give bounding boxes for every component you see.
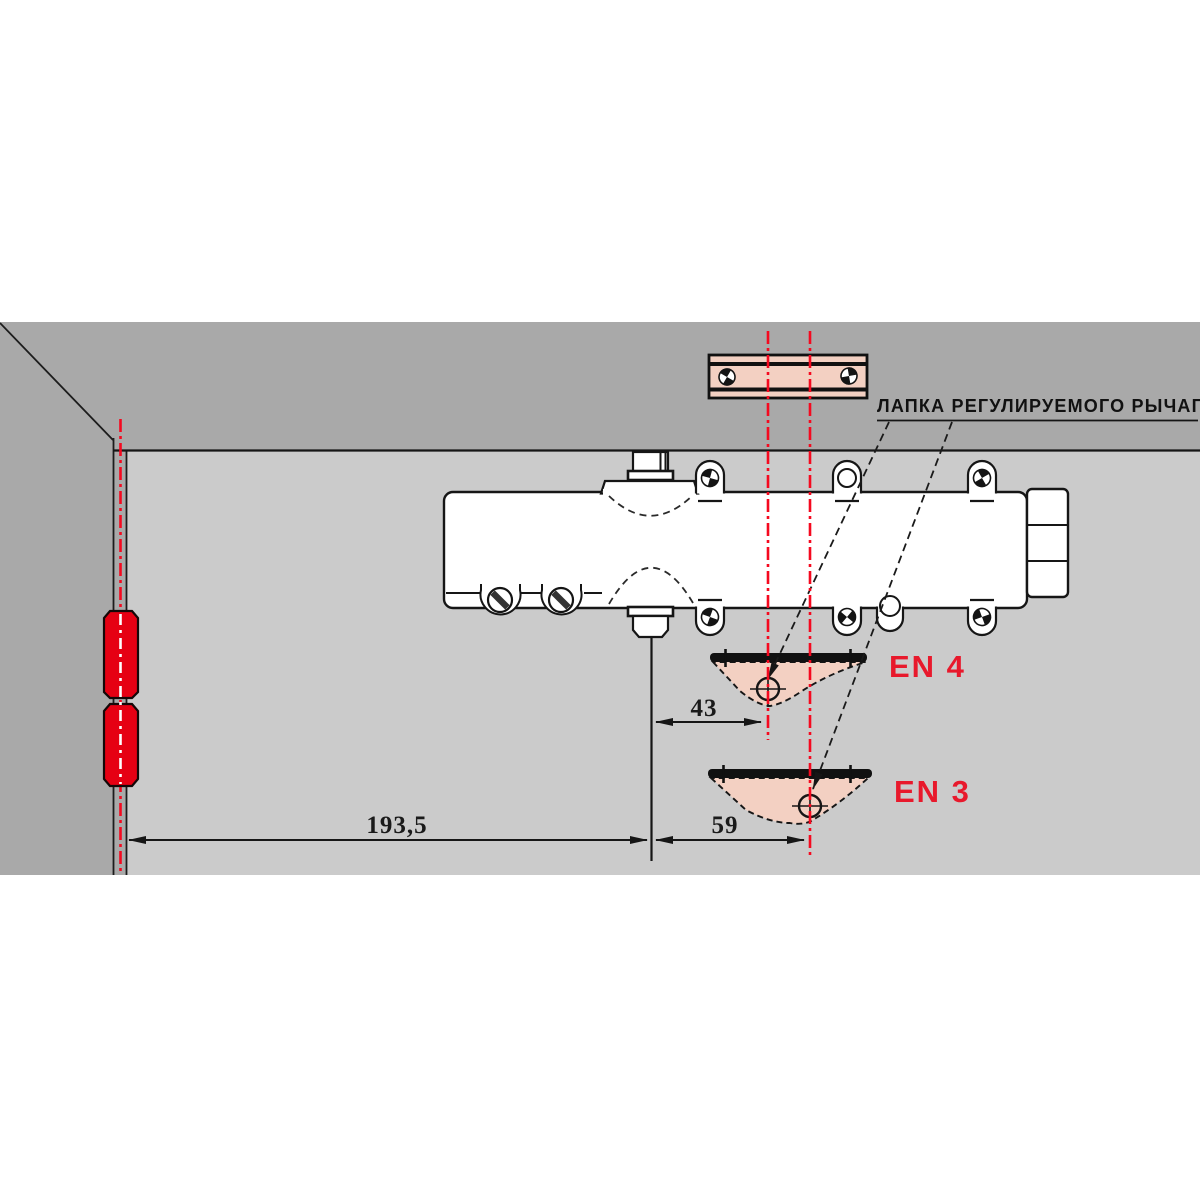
- installation-diagram: ЛАПКА РЕГУЛИРУЕМОГО РЫЧАГА EN 4 EN 3 193…: [0, 0, 1200, 1200]
- en4-label: EN 4: [889, 649, 966, 684]
- closer-housing: [444, 492, 1027, 608]
- en3-label: EN 3: [894, 774, 971, 809]
- dim-value-193-5: 193,5: [366, 812, 427, 839]
- ear-top-2-hole-icon: [838, 469, 856, 487]
- hump-joint-mask: [603, 489, 696, 497]
- valve-block: [1027, 489, 1068, 597]
- dim-value-59: 59: [712, 812, 739, 839]
- spindle-bottom-base: [628, 607, 673, 616]
- mounting-plate: [709, 355, 867, 398]
- arm-foot-callout-label: ЛАПКА РЕГУЛИРУЕМОГО РЫЧАГА: [877, 396, 1200, 416]
- bracket-en4-bar: [710, 653, 867, 662]
- spindle-bottom-block: [633, 616, 668, 637]
- diagram-canvas: ЛАПКА РЕГУЛИРУЕМОГО РЫЧАГА EN 4 EN 3 193…: [0, 0, 1200, 1200]
- spindle-top-base: [628, 471, 673, 480]
- dim-value-43: 43: [691, 695, 718, 722]
- bracket-en3-bar: [708, 769, 872, 778]
